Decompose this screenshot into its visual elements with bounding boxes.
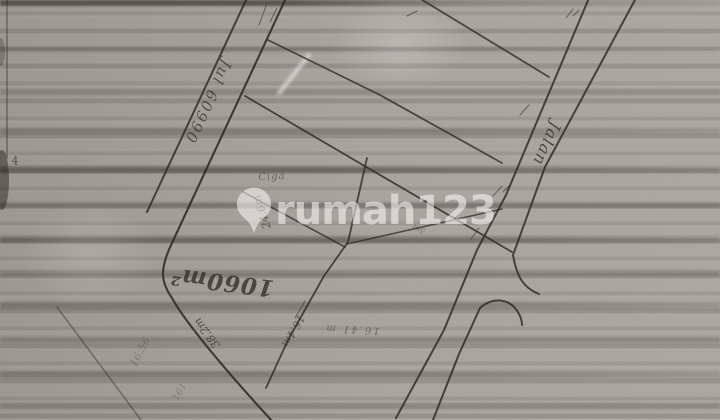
plot-boundary-top [419, 0, 549, 77]
handwritten-place-note: Ciga [258, 171, 286, 183]
plot-boundary-side [266, 158, 367, 388]
scanned-site-plan: Jul 60990 Jalan Ciga 1060m² 24.6m 38.2m … [0, 0, 720, 420]
road-right-east-edge [513, 0, 636, 294]
ink-smudge [0, 38, 5, 66]
plot-boundary-lines [0, 0, 720, 420]
branch-road-edge [433, 300, 522, 420]
plot-boundary-mid-upper [268, 40, 502, 163]
road-right-west-edge [396, 0, 589, 418]
ink-smudge [0, 150, 9, 210]
margin-mark: 4 [12, 155, 19, 168]
